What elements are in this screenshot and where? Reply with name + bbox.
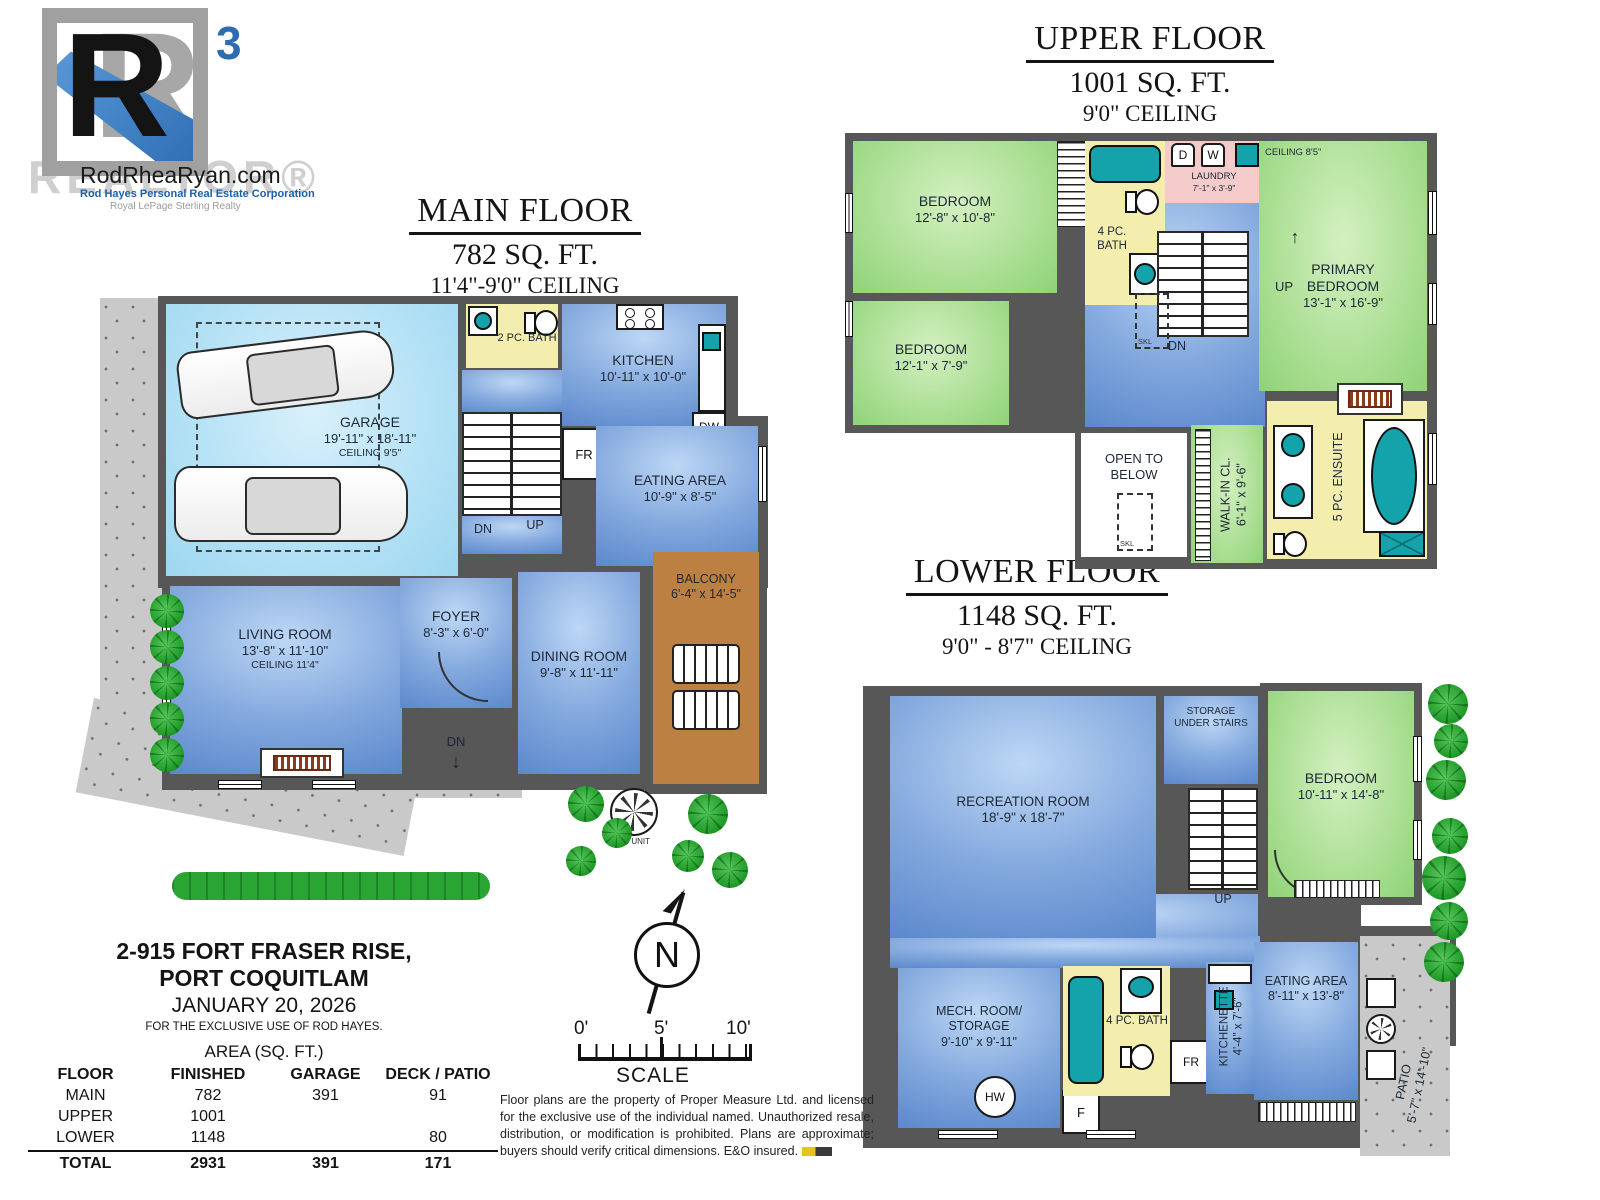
skylight-outline: SKL — [1117, 493, 1153, 551]
area-cell: UPPER — [28, 1108, 143, 1126]
area-cell — [378, 1108, 498, 1126]
room-name: BEDROOM — [880, 193, 1030, 210]
tree-icon — [150, 594, 184, 628]
skylight-outline: SKL — [1135, 293, 1169, 349]
room-name: FOYER — [400, 608, 512, 625]
mech-label: MECH. ROOM/ STORAGE 9'-10" x 9'-11" — [918, 1004, 1040, 1050]
room-dims: 6'-1" x 9'-6" — [1234, 430, 1250, 560]
bath-label: 2 PC. BATH — [496, 332, 558, 345]
area-cell: 1148 — [143, 1129, 273, 1147]
room-name: WALK-IN CL. — [1218, 430, 1234, 560]
kitchen-label: KITCHEN 10'-11" x 10'-0" — [588, 352, 698, 385]
furnace-label: F — [1077, 1105, 1085, 1120]
col-header: FINISHED — [143, 1066, 273, 1084]
scale-label: SCALE — [616, 1064, 690, 1088]
sink-icon — [1134, 263, 1156, 285]
washer-label: W — [1207, 148, 1218, 162]
compass-circle: N — [634, 922, 700, 988]
room-dims: 10'-9" x 8'-5" — [615, 489, 745, 505]
room-name: MECH. ROOM/ STORAGE — [918, 1004, 1040, 1035]
room-name: BEDROOM — [1280, 770, 1402, 787]
tree-icon — [1430, 902, 1468, 940]
room-name: LAUNDRY — [1167, 171, 1261, 183]
closet-rod — [1195, 429, 1211, 561]
stair-landing — [462, 370, 562, 414]
toilet-icon — [1273, 531, 1305, 555]
patio-table-icon — [1366, 1014, 1396, 1044]
soaker-tub-icon — [1371, 427, 1417, 525]
room-name: BALCONY — [656, 572, 756, 587]
room-dims: 12'-8" x 10'-8" — [880, 210, 1030, 226]
stairs-up-label: UP — [1208, 892, 1238, 907]
scale-mid-tick — [660, 1037, 663, 1057]
dryer-label: D — [1179, 148, 1188, 162]
info-block: 2-915 FORT FRASER RISE, PORT COQUITLAM J… — [28, 938, 500, 1173]
col-header: DECK / PATIO — [378, 1066, 498, 1084]
toilet-icon — [1125, 189, 1157, 213]
scale-tick-0: 0' — [574, 1018, 588, 1040]
room-dims: 13'-8" x 11'-10" — [195, 643, 375, 659]
tree-icon — [566, 846, 596, 876]
room-name: RECREATION ROOM — [938, 794, 1108, 810]
col-header: FLOOR — [28, 1066, 143, 1084]
brand-subtitle2: Royal LePage Sterling Realty — [110, 201, 241, 212]
fr-label: FR — [1183, 1055, 1199, 1069]
area-caption: AREA (SQ. FT.) — [28, 1042, 500, 1062]
total-cell: 2931 — [143, 1150, 273, 1173]
window — [1413, 736, 1422, 782]
window — [218, 780, 262, 789]
sink-icon — [474, 312, 492, 330]
address-line2: PORT COQUITLAM — [28, 965, 500, 992]
burner — [625, 308, 635, 318]
plan-date: JANUARY 20, 2026 — [28, 994, 500, 1018]
tree-icon — [568, 786, 604, 822]
total-cell: TOTAL — [28, 1150, 143, 1173]
tree-icon — [688, 794, 728, 834]
open-below-label: OPEN TO BELOW — [1089, 451, 1179, 483]
car-roof — [245, 344, 340, 407]
window — [1413, 820, 1422, 860]
toilet-icon — [524, 310, 556, 334]
tree-icon — [1428, 684, 1468, 724]
bedroom2-label: BEDROOM 12'-1" x 7'-9" — [858, 341, 1004, 374]
bedroom1-label: BEDROOM 12'-8" x 10'-8" — [880, 193, 1030, 226]
eating-label: EATING AREA 10'-9" x 8'-5" — [615, 472, 745, 505]
window — [312, 780, 356, 789]
logo-mark: R R — [42, 8, 208, 176]
closet-rod — [1057, 141, 1087, 227]
hedge-row — [172, 872, 490, 900]
patio-chair-icon — [1366, 1050, 1396, 1080]
laundry-label: LAUNDRY 7'-1" x 3'-9" — [1167, 171, 1261, 193]
hw-label: HW — [985, 1090, 1005, 1104]
primary-label: PRIMARY BEDROOM 13'-1" x 16'-9" — [1283, 261, 1403, 311]
main-floor-area: 782 SQ. FT. — [375, 238, 675, 272]
room-name: EATING AREA — [615, 472, 745, 489]
window — [1086, 1130, 1136, 1139]
patio-chair-icon — [1366, 978, 1396, 1008]
area-cell: LOWER — [28, 1129, 143, 1147]
window — [845, 301, 853, 337]
washer-box: W — [1201, 143, 1225, 167]
stove-icon — [616, 304, 664, 330]
stair-rail — [510, 412, 513, 516]
area-table: FLOOR FINISHED GARAGE DECK / PATIO MAIN … — [28, 1066, 500, 1173]
room-ceiling: CEILING 11'4" — [195, 659, 375, 672]
room-ceiling: CEILING 9'5" — [290, 447, 450, 460]
room-name: DINING ROOM — [520, 648, 638, 665]
burner — [645, 319, 655, 329]
stairs-dn-label: DN — [466, 522, 500, 537]
sink-icon — [1128, 976, 1154, 998]
window — [1428, 191, 1437, 235]
upper-floor-ceiling: 9'0" CEILING — [985, 101, 1315, 127]
skl-label: SKL — [1138, 337, 1152, 346]
lounge-chair-icon — [672, 644, 740, 684]
lower-floor-area: 1148 SQ. FT. — [872, 599, 1202, 633]
fireplace-icon — [260, 748, 344, 778]
upper-floor-area: 1001 SQ. FT. — [985, 66, 1315, 100]
area-cell: MAIN — [28, 1087, 143, 1105]
window — [938, 1130, 998, 1139]
room-name: BEDROOM — [858, 341, 1004, 358]
room-name: PRIMARY BEDROOM — [1283, 261, 1403, 295]
main-floor-title: MAIN FLOOR 782 SQ. FT. 11'4"-9'0" CEILIN… — [375, 192, 675, 299]
logo-r: R — [63, 8, 170, 171]
tree-icon — [1432, 818, 1468, 854]
brand-subtitle1: Rod Hayes Personal Real Estate Corporati… — [80, 188, 315, 200]
room-name: LIVING ROOM — [195, 626, 375, 643]
fireplace-hatch — [273, 755, 331, 771]
porch-dn-label: DN — [436, 734, 476, 750]
balcony-label: BALCONY 6'-4" x 14'-5" — [656, 572, 756, 603]
tree-icon — [1424, 942, 1464, 982]
window — [1428, 433, 1437, 485]
main-floor-plan: GARAGE 19'-11" x 18'-11" CEILING 9'5" 2 … — [100, 296, 800, 928]
proper-measure-logo — [802, 1147, 832, 1156]
toilet-icon — [1120, 1044, 1152, 1068]
burner — [645, 308, 655, 318]
toilet-bowl — [1130, 1044, 1154, 1070]
scale-bar — [578, 1044, 752, 1061]
north-compass: N — [612, 888, 722, 1023]
foyer-label: FOYER 8'-3" x 6'-0" — [400, 608, 512, 641]
stair-rail — [1201, 231, 1204, 337]
porch-dn-arrow: ↓ — [436, 750, 476, 774]
tree-icon — [602, 818, 632, 848]
upper-floor-plan: BEDROOM 12'-8" x 10'-8" BEDROOM 12'-1" x… — [845, 133, 1445, 578]
room-name: KITCHEN — [588, 352, 698, 369]
tree-icon — [712, 852, 748, 888]
stairs-up-arrow: ↑ — [1210, 828, 1236, 848]
col-header: GARAGE — [273, 1066, 378, 1084]
storage-label: STORAGE UNDER STAIRS — [1170, 706, 1252, 730]
room-dims: 6'-4" x 14'-5" — [656, 587, 756, 602]
lower-hall — [890, 936, 1260, 968]
room-dims: 7'-1" x 3'-9" — [1167, 183, 1261, 193]
primary-ceiling-note: CEILING 8'5" — [1265, 147, 1355, 159]
room-dims: 19'-11" x 18'-11" — [290, 431, 450, 447]
room-dims: 8'-3" x 6'-0" — [400, 625, 512, 641]
tree-icon — [1422, 856, 1466, 900]
lower-floor-plan: RECREATION ROOM 18'-9" x 18'-7" STORAGE … — [858, 678, 1503, 1183]
fireplace-icon — [1337, 383, 1403, 415]
hot-water-tank-icon: HW — [974, 1076, 1016, 1118]
brand-website: RodRheaRyan.com — [80, 162, 281, 189]
lower-bath-label: 4 PC. BATH — [1106, 1014, 1168, 1028]
upper-floor-title-text: UPPER FLOOR — [1026, 20, 1273, 63]
area-cell: 80 — [378, 1129, 498, 1147]
total-cell: 391 — [273, 1150, 378, 1173]
logo-superscript: 3 — [216, 16, 242, 70]
brand-logo: REALTOR® R R 3 RodRheaRyan.com Rod Hayes… — [28, 4, 348, 220]
window — [845, 193, 853, 233]
main-floor-title-text: MAIN FLOOR — [409, 192, 641, 235]
fr-label: FR — [575, 447, 592, 462]
kitchenette-label: KITCHENETTE 4'-4" x 7'-6" — [1218, 968, 1247, 1084]
table-spokes — [1370, 1018, 1392, 1040]
shower-icon — [1379, 531, 1425, 557]
ensuite-label: 5 PC. ENSUITE — [1331, 417, 1347, 537]
room-name: KITCHENETTE — [1218, 968, 1232, 1084]
tree-icon — [150, 666, 184, 700]
lounge-chair-icon — [672, 690, 740, 730]
burner — [625, 319, 635, 329]
room-name: GARAGE — [290, 414, 450, 431]
area-cell: 91 — [378, 1087, 498, 1105]
tree-icon — [150, 738, 184, 772]
room-dims: 9'-8" x 11'-11" — [520, 665, 638, 681]
exclusive-note: FOR THE EXCLUSIVE USE OF ROD HAYES. — [28, 1021, 500, 1033]
disclaimer-block: Floor plans are the property of Proper M… — [500, 1092, 874, 1160]
dryer-box: D — [1171, 143, 1195, 167]
area-cell: 782 — [143, 1087, 273, 1105]
window-well — [1294, 880, 1380, 898]
toilet-bowl — [1135, 189, 1159, 215]
room-name: 2 PC. BATH — [496, 332, 558, 345]
room-dims: 13'-1" x 16'-9" — [1283, 295, 1403, 311]
sink-icon — [1281, 433, 1305, 457]
tree-icon — [1434, 724, 1468, 758]
toilet-bowl — [1283, 531, 1307, 557]
up-label: UP — [1269, 279, 1299, 295]
bathtub-icon — [1089, 145, 1161, 183]
area-cell: 1001 — [143, 1108, 273, 1126]
tree-icon — [1426, 760, 1466, 800]
room-name: EATING AREA — [1256, 974, 1356, 989]
room-dims: 18'-9" x 18'-7" — [938, 810, 1108, 826]
lower-bedroom-label: BEDROOM 10'-11" x 14'-8" — [1280, 770, 1402, 803]
dining-label: DINING ROOM 9'-8" x 11'-11" — [520, 648, 638, 681]
laundry-sink-icon — [1235, 143, 1259, 167]
room-dims: 10'-11" x 14'-8" — [1280, 787, 1402, 803]
kitchen-sink-icon — [702, 332, 721, 351]
address-line1: 2-915 FORT FRASER RISE, — [28, 938, 500, 965]
room-dims: 4'-4" x 7'-6" — [1232, 968, 1246, 1084]
window — [758, 446, 767, 502]
living-label: LIVING ROOM 13'-8" x 11'-10" CEILING 11'… — [195, 626, 375, 672]
floorplan-sheet: REALTOR® R R 3 RodRheaRyan.com Rod Hayes… — [0, 0, 1600, 1200]
car-roof — [245, 477, 341, 536]
area-cell — [273, 1108, 378, 1126]
recreation-label: RECREATION ROOM 18'-9" x 18'-7" — [938, 794, 1108, 827]
area-cell: 391 — [273, 1087, 378, 1105]
fireplace-hatch — [1348, 390, 1393, 407]
room-dims: 8'-11" x 13'-8" — [1256, 989, 1356, 1004]
walkin-label: WALK-IN CL. 6'-1" x 9'-6" — [1218, 430, 1249, 560]
room-lower-eating — [1254, 942, 1358, 1100]
upper-floor-title: UPPER FLOOR 1001 SQ. FT. 9'0" CEILING — [985, 20, 1315, 127]
room-dims: 12'-1" x 7'-9" — [858, 358, 1004, 374]
furnace-box: F — [1062, 1090, 1100, 1134]
bath-label: 4 PC. BATH — [1086, 225, 1138, 253]
tree-icon — [150, 702, 184, 736]
area-cell — [273, 1129, 378, 1147]
sink-icon — [1281, 483, 1305, 507]
room-dims: 10'-11" x 10'-0" — [588, 369, 698, 385]
window-well — [1258, 1102, 1356, 1122]
skl-label: SKL — [1120, 539, 1134, 548]
car-icon — [174, 466, 408, 542]
lower-eating-label: EATING AREA 8'-11" x 13'-8" — [1256, 974, 1356, 1005]
tree-icon — [672, 840, 704, 872]
scale-tick-10: 10' — [726, 1018, 751, 1040]
tree-icon — [150, 630, 184, 664]
lower-floor-ceiling: 9'0" - 8'7" CEILING — [872, 634, 1202, 660]
total-cell: 171 — [378, 1150, 498, 1173]
room-dims: 9'-10" x 9'-11" — [918, 1035, 1040, 1050]
room-living — [170, 586, 402, 774]
stairs-up-label: UP — [518, 518, 552, 533]
bathtub-icon — [1068, 976, 1104, 1084]
window — [1428, 283, 1437, 325]
garage-label: GARAGE 19'-11" x 18'-11" CEILING 9'5" — [290, 414, 450, 460]
up-arrow: ↑ — [1283, 227, 1307, 249]
